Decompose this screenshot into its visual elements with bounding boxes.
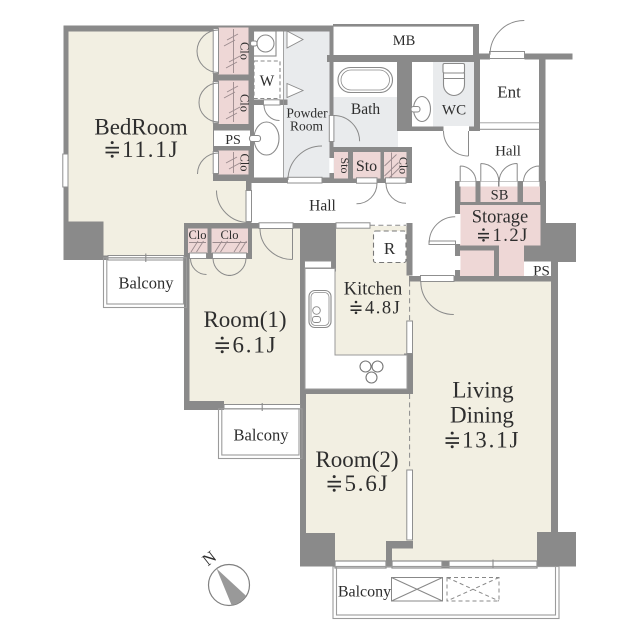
svg-text:Clo: Clo (397, 157, 411, 174)
svg-text:Room(2): Room(2) (315, 447, 398, 472)
svg-text:SB: SB (491, 187, 509, 203)
svg-text:Hall: Hall (495, 144, 521, 160)
svg-text:Room(1): Room(1) (203, 307, 286, 332)
svg-text:6.1J: 6.1J (233, 333, 278, 358)
svg-text:Sto: Sto (356, 158, 377, 175)
svg-text:11.1J: 11.1J (122, 137, 179, 162)
svg-text:Clo: Clo (188, 228, 206, 242)
svg-text:5.6J: 5.6J (345, 471, 390, 496)
svg-text:Balcony: Balcony (234, 426, 290, 445)
svg-text:Clo: Clo (238, 153, 252, 171)
svg-text:W: W (260, 73, 275, 90)
svg-text:Clo: Clo (238, 94, 252, 112)
svg-text:Balcony: Balcony (119, 274, 175, 293)
svg-text:PS: PS (533, 264, 550, 280)
svg-text:1.2J: 1.2J (493, 226, 529, 246)
svg-text:Clo: Clo (238, 42, 252, 60)
svg-text:Ent: Ent (497, 83, 521, 102)
svg-text:MB: MB (393, 33, 416, 49)
svg-text:WC: WC (442, 103, 466, 119)
svg-text:Balcony: Balcony (338, 584, 391, 601)
svg-text:Bath: Bath (351, 101, 381, 118)
svg-text:4.8J: 4.8J (365, 299, 401, 319)
svg-text:Storage: Storage (472, 208, 529, 228)
svg-text:Living: Living (452, 378, 514, 403)
svg-text:Clo: Clo (220, 228, 238, 242)
svg-text:Hall: Hall (309, 198, 336, 215)
svg-text:R: R (384, 239, 396, 258)
svg-text:Room: Room (290, 119, 324, 134)
svg-text:BedRoom: BedRoom (94, 115, 187, 140)
svg-text:Kitchen: Kitchen (344, 280, 403, 300)
svg-text:Dining: Dining (450, 403, 514, 428)
svg-text:13.1J: 13.1J (462, 428, 520, 453)
svg-text:Sto: Sto (338, 157, 352, 173)
svg-text:PS: PS (225, 133, 241, 148)
